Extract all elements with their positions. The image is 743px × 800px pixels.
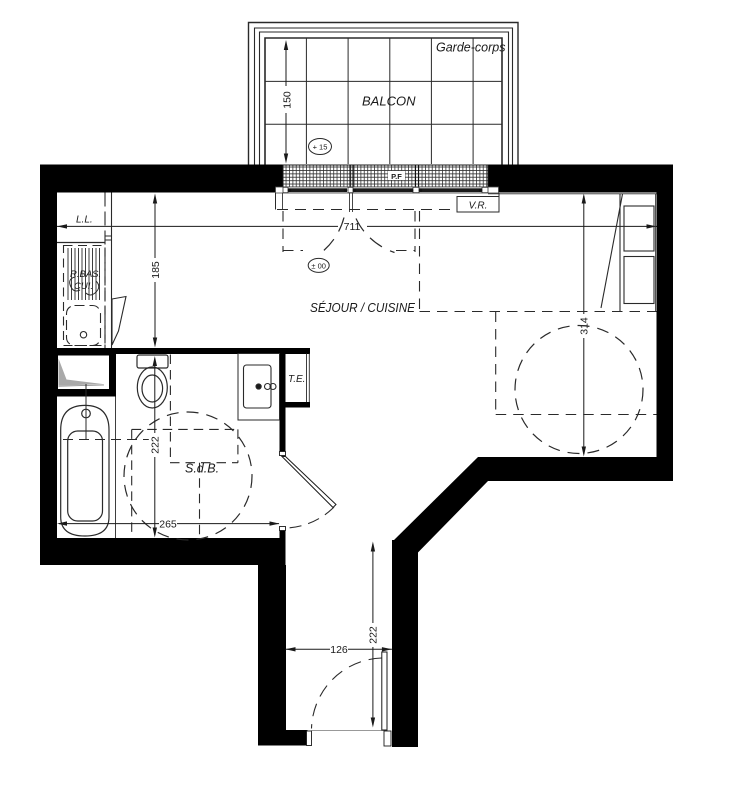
svg-text:185: 185: [150, 261, 162, 279]
svg-text:150: 150: [282, 91, 294, 109]
svg-text:P.F: P.F: [391, 172, 402, 181]
svg-text:222: 222: [149, 436, 161, 454]
svg-text:BALCON: BALCON: [362, 94, 416, 109]
svg-text:L.L.: L.L.: [76, 215, 93, 226]
svg-text:R.BAS.: R.BAS.: [70, 269, 101, 280]
svg-text:V.R.: V.R.: [469, 201, 488, 212]
svg-text:126: 126: [330, 644, 348, 656]
svg-text:S.d.B.: S.d.B.: [185, 462, 219, 476]
svg-text:CUI.: CUI.: [74, 281, 93, 292]
svg-text:+ 15: + 15: [313, 143, 328, 152]
svg-text:± 00: ± 00: [311, 261, 326, 270]
svg-text:265: 265: [159, 518, 177, 530]
svg-text:222: 222: [368, 626, 380, 644]
svg-text:711: 711: [344, 221, 361, 233]
svg-text:Garde-corps: Garde-corps: [436, 41, 505, 55]
svg-text:T.E.: T.E.: [288, 374, 305, 385]
svg-text:SÉJOUR / CUISINE: SÉJOUR / CUISINE: [310, 300, 415, 315]
